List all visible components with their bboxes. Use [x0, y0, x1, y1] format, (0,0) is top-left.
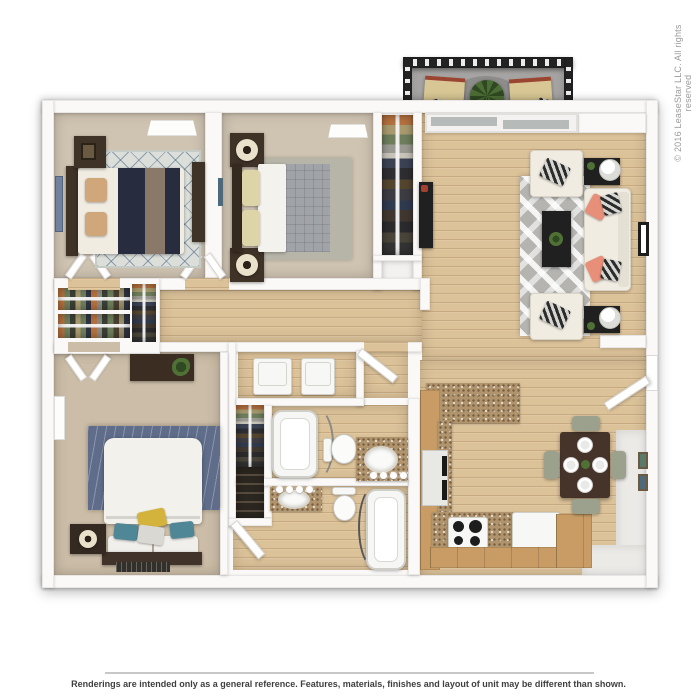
bedroom-3-pillow-teal-a [113, 523, 139, 541]
bedroom-3-closet-clothes [236, 405, 264, 467]
dining-chair-right [611, 451, 626, 479]
bathroom-2-vanity-bulb-1 [276, 486, 283, 493]
dining-chair-bottom [572, 499, 600, 514]
bathroom-2-vanity-bulb-3 [296, 486, 303, 493]
wall-bed2-closet [373, 112, 382, 290]
bedroom-1-wall-art [55, 176, 63, 232]
bedroom-2-closet-clothes [382, 115, 413, 255]
fridge-handle-b [442, 480, 447, 500]
bathroom-2-shower-rod [358, 487, 388, 567]
bedroom-2-ceiling-light [328, 124, 368, 138]
wall-top [42, 100, 658, 113]
hall-closet-small [132, 284, 156, 342]
wall-hall-living-stub [420, 278, 430, 310]
sliding-door-pane-b [503, 120, 569, 129]
bedroom-3-pillow-gray [137, 524, 165, 545]
dining-chair-left [544, 451, 559, 479]
dining-plate-bottom [577, 477, 593, 493]
washer-lid [258, 362, 287, 386]
dining-chair-top [572, 416, 600, 431]
dining-wall-art-a [638, 452, 648, 469]
side-table-bottom-lamp [599, 307, 621, 329]
bedroom-2-lamp-b [236, 254, 258, 276]
bedroom-3-closet-shoes [236, 467, 264, 518]
bedroom-1-pillow-b [85, 212, 107, 236]
bedroom-3-door [70, 354, 114, 382]
bedroom-2-pillow-b [242, 210, 260, 246]
fridge-handle-a [442, 456, 447, 476]
bathroom-1-toilet [331, 434, 357, 464]
kitchen-peninsula [426, 383, 520, 423]
bathroom-1-vanity-bulb-1 [370, 472, 377, 479]
sliding-door-pane-a [431, 117, 497, 126]
bathroom-1-door-opening [364, 342, 408, 352]
bedroom-2-quilt [286, 164, 330, 252]
stove-burner-1 [453, 521, 464, 532]
kitchen-cabinet-corner [556, 514, 592, 568]
stove-burner-4 [470, 536, 480, 546]
side-table-top-plant [587, 162, 595, 170]
wall-bath-kitchen [408, 398, 420, 575]
side-table-top-lamp [599, 159, 621, 181]
wall-right [646, 100, 658, 588]
living-room-wall-art [638, 222, 649, 256]
entry-side-window [646, 355, 658, 391]
bedroom-3-lamp [79, 530, 97, 548]
hall-closet-lower [58, 314, 130, 338]
bathroom-2-toilet-tank [332, 487, 356, 495]
bedroom-3-side-door [54, 396, 65, 440]
bedroom-1-picture-frame [81, 143, 96, 160]
wall-left [42, 100, 54, 588]
bedroom-3-pillow-teal-b [169, 521, 195, 539]
bedroom-2-lamp-a [236, 139, 258, 161]
bedroom-1-dresser [192, 162, 205, 242]
wall-living-top-right [578, 113, 646, 133]
dining-plate-left [563, 457, 579, 473]
bathroom-2-vanity-bulb-4 [306, 486, 313, 493]
bathroom-1-vanity-bulb-4 [400, 472, 407, 479]
dining-centerpiece [581, 460, 590, 469]
bathroom-2-toilet [333, 495, 356, 521]
bathroom-2-sink [278, 490, 310, 509]
dishwasher [512, 512, 560, 550]
kitchen-cabinets-bottom [430, 547, 568, 568]
dining-wall-art-b [638, 474, 648, 491]
coffee-table-plant [549, 232, 563, 246]
bedroom-1-ceiling-light [147, 120, 197, 136]
hall-closet-upper [58, 288, 130, 310]
unit-floorplan [42, 100, 658, 588]
stove-burner-3 [454, 536, 463, 545]
bedroom-3-door-opening [68, 342, 120, 352]
dining-plate-top [577, 437, 593, 453]
bathroom-1-sink [364, 446, 398, 473]
wall-entry-stub [600, 335, 646, 348]
wall-bottom [42, 575, 658, 588]
bathroom-1-vanity-bulb-2 [380, 472, 387, 479]
bedroom-1-bed-runner [145, 168, 165, 254]
bedroom-2-sheets [258, 164, 286, 252]
side-table-bottom-plant [587, 322, 595, 330]
wall-laundry-left [228, 342, 236, 526]
bathroom-1-vanity-bulb-3 [390, 472, 397, 479]
stove-burner-2 [469, 520, 482, 533]
footer-divider [105, 672, 594, 674]
bedroom-2-pillow-a [242, 170, 260, 206]
copyright-text: © 2016 LeaseStar LLC. All rights reserve… [673, 13, 693, 173]
bedroom-1-pillow-a [85, 178, 107, 202]
dryer-lid [305, 362, 331, 386]
disclaimer-text: Renderings are intended only as a genera… [0, 679, 697, 689]
tv-console-decor [421, 185, 428, 192]
dining-plate-right [592, 457, 608, 473]
wall-bed3-right [220, 352, 228, 575]
floorplan-rendering: © 2016 LeaseStar LLC. All rights reserve… [0, 0, 697, 697]
hallway-floor [160, 290, 422, 342]
bedroom-1-headboard [66, 166, 78, 256]
bedroom-2-headboard [232, 164, 242, 252]
balcony-railing-top [403, 57, 573, 68]
bedroom-2-wall-art [218, 178, 223, 206]
bathroom-2-vanity-bulb-2 [286, 486, 293, 493]
bedroom-3-floor-mat [116, 562, 170, 572]
